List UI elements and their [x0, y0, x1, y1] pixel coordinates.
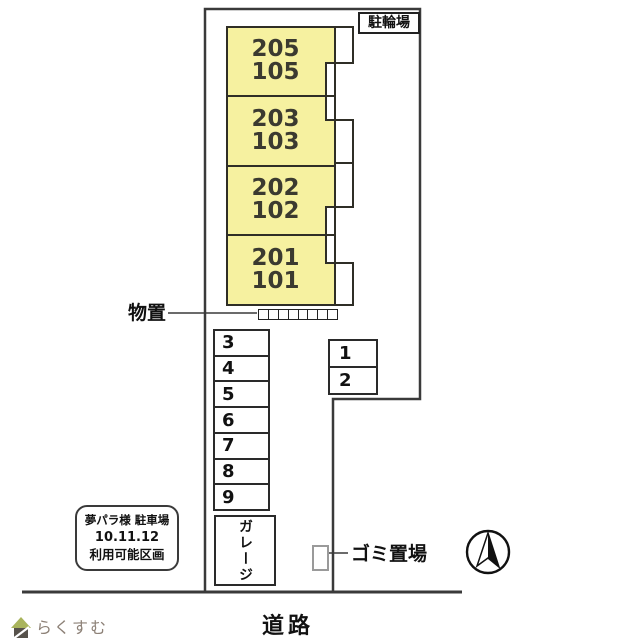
- balcony-box-4: [335, 263, 353, 305]
- storage-cell: [308, 310, 318, 319]
- unit-lower-number: 103: [227, 131, 324, 154]
- storage-cell: [328, 310, 337, 319]
- unit-lower-number: 102: [227, 200, 324, 223]
- storage-cell: [289, 310, 299, 319]
- storage-label: 物置: [128, 303, 166, 323]
- storage-cell: [279, 310, 289, 319]
- parking-slot-2: 2: [330, 368, 376, 393]
- unit-label-205-105: 205 105: [227, 38, 324, 84]
- balcony-box-1: [335, 27, 353, 63]
- parking-slot-1: 1: [330, 341, 376, 368]
- building-notch-upper: [326, 63, 335, 120]
- notice-line-1: 夢パラ様 駐車場: [77, 512, 177, 529]
- road-label: 道路: [250, 608, 326, 640]
- parking-pair-1-2: 1 2: [328, 339, 378, 395]
- balcony-box-3: [335, 163, 353, 207]
- unit-upper-number: 201: [227, 247, 324, 270]
- bicycle-parking-label: 駐輪場: [358, 12, 420, 34]
- parking-slot-5: 5: [215, 382, 268, 408]
- storage-cell: [318, 310, 328, 319]
- unit-lower-number: 105: [227, 61, 324, 84]
- unit-label-201-101: 201 101: [227, 247, 324, 293]
- notice-box: 夢パラ様 駐車場 10.11.12 利用可能区画: [75, 505, 179, 571]
- unit-upper-number: 203: [227, 108, 324, 131]
- storage-cell: [259, 310, 269, 319]
- unit-label-203-103: 203 103: [227, 108, 324, 154]
- parking-column-3-9: 3 4 5 6 7 8 9: [213, 329, 270, 511]
- parking-slot-4: 4: [215, 357, 268, 383]
- garbage-area-rect: [312, 545, 329, 571]
- parking-slot-7: 7: [215, 434, 268, 460]
- compass-north-icon: [467, 531, 509, 573]
- unit-label-202-102: 202 102: [227, 177, 324, 223]
- parking-slot-6: 6: [215, 408, 268, 434]
- unit-lower-number: 101: [227, 270, 324, 293]
- balcony-box-2: [335, 120, 353, 163]
- unit-upper-number: 202: [227, 177, 324, 200]
- storage-units-strip: [258, 309, 338, 320]
- storage-cell: [299, 310, 309, 319]
- garage-box: ガレージ: [214, 515, 276, 586]
- parking-slot-8: 8: [215, 460, 268, 486]
- garage-label: ガレージ: [235, 519, 255, 583]
- unit-upper-number: 205: [227, 38, 324, 61]
- garbage-area-label: ゴミ置場: [351, 544, 427, 564]
- storage-cell: [269, 310, 279, 319]
- notice-line-2: 10.11.12: [77, 529, 177, 546]
- parking-slot-3: 3: [215, 331, 268, 357]
- notice-line-3: 利用可能区画: [77, 546, 177, 563]
- parking-slot-9: 9: [215, 485, 268, 509]
- watermark-brand: らくすむ: [36, 618, 108, 638]
- site-plan-diagram: 駐輪場 205 105 203 103 202 102 201 101 物置 3…: [0, 0, 640, 640]
- house-logo-icon: [11, 617, 31, 639]
